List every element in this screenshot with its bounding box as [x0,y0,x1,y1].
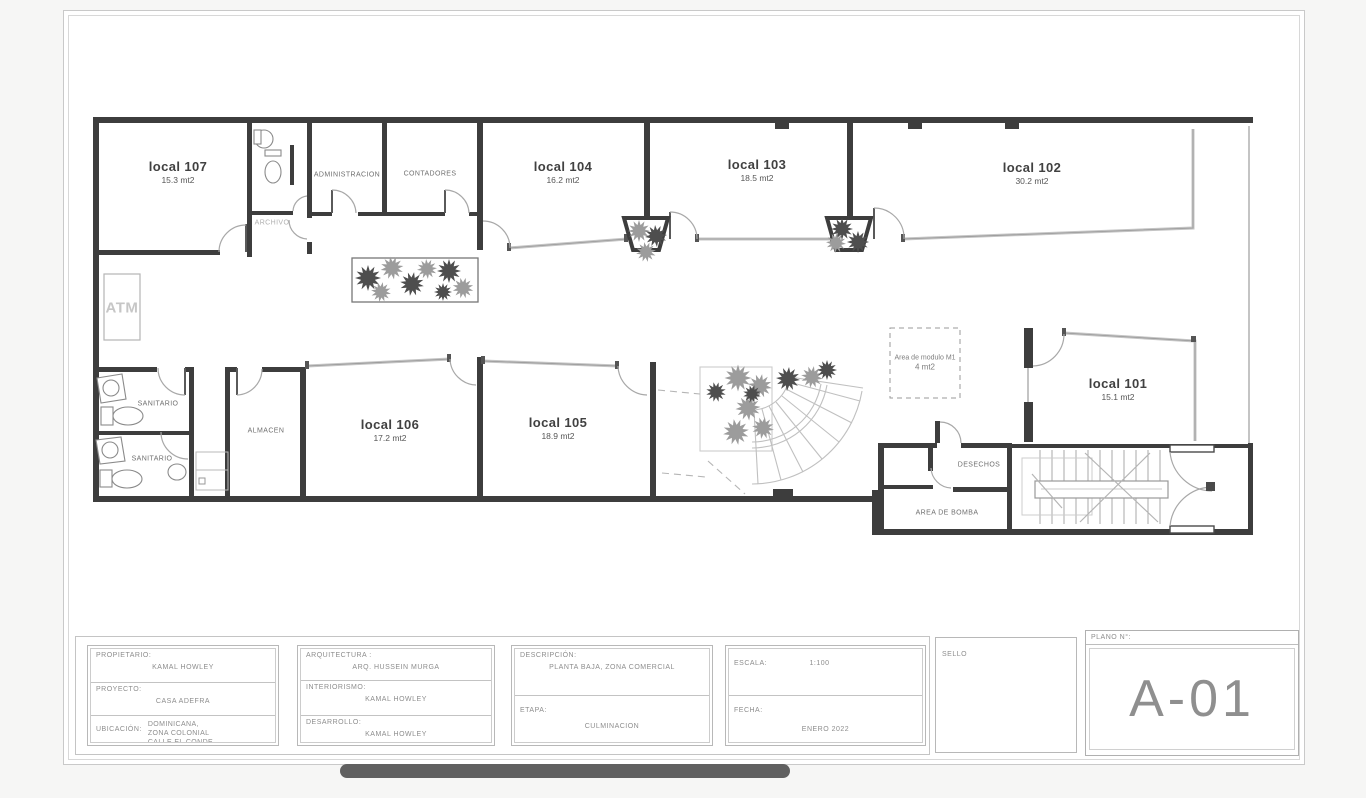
label-archivo: ARCHIVO [255,220,290,227]
titleblock-design-team: ARQUITECTURA : ARQ. HUSSEIN MURGA INTERI… [297,645,495,746]
titleblock-description: DESCRIPCIÓN: PLANTA BAJA, ZONA COMERCIAL… [511,645,713,746]
room-label-local-106: local 106 17.2 mt2 [361,417,420,443]
arquitectura-value: ARQ. HUSSEIN MURGA [306,664,486,671]
proyecto-label: PROYECTO: [96,686,270,693]
plano-label: PLANO N°: [1086,631,1298,645]
room-name: local 106 [361,417,420,432]
room-label-local-103: local 103 18.5 mt2 [728,157,787,183]
room-name: local 101 [1089,376,1148,391]
propietario-label: PROPIETARIO: [96,652,270,659]
module-note-line1: Area de modulo M1 [894,355,955,362]
label-contadores: CONTADORES [404,171,457,178]
room-area: 18.5 mt2 [740,173,773,183]
drawing-viewer: local 107 15.3 mt2 local 104 16.2 mt2 lo… [0,0,1366,798]
desarrollo-value: KAMAL HOWLEY [306,731,486,738]
module-area-note: Area de modulo M1 4 mt2 [894,355,955,372]
room-area: 30.2 mt2 [1015,176,1048,186]
room-name: local 102 [1003,160,1062,175]
column-planter-1 [624,218,671,266]
descripcion-label: DESCRIPCIÓN: [520,652,704,659]
ubicacion-label: UBICACIÓN: [96,726,142,733]
room-label-local-105: local 105 18.9 mt2 [529,415,588,441]
room-area: 17.2 mt2 [373,433,406,443]
label-sanitario-1: SANITARIO [138,401,179,408]
titleblock-sello: SELLO [935,637,1077,753]
room-name: local 104 [534,159,593,174]
room-name: local 103 [728,157,787,172]
fecha-label: FECHA: [734,707,917,714]
room-label-local-101: local 101 15.1 mt2 [1089,376,1148,402]
room-name: local 105 [529,415,588,430]
etapa-value: CULMINACION [520,723,704,730]
descripcion-value: PLANTA BAJA, ZONA COMERCIAL [520,664,704,671]
room-area: 18.9 mt2 [541,431,574,441]
proyecto-value: CASA ADEFRA [96,698,270,705]
escala-label: ESCALA: [734,660,767,667]
sheet-number: A-01 [1089,648,1295,750]
propietario-value: KAMAL HOWLEY [96,664,270,671]
etapa-label: ETAPA: [520,707,704,714]
label-atm: ATM [106,300,139,317]
titleblock-scale-date: ESCALA: 1:100 FECHA: ENERO 2022 [725,645,926,746]
label-administracion: ADMINISTRACION [314,172,380,179]
room-label-local-102: local 102 30.2 mt2 [1003,160,1062,186]
ubicacion-value: REPÚBLICA DOMINICANA, ZONA COLONIAL CALL… [148,716,213,742]
desarrollo-label: DESARROLLO: [306,719,486,726]
room-label-local-104: local 104 16.2 mt2 [534,159,593,185]
fan-stair [700,367,863,484]
titleblock-plano: PLANO N°: A-01 [1085,630,1299,756]
module-note-line2: 4 mt2 [915,363,935,372]
main-stair [1022,445,1215,533]
label-desechos: DESECHOS [958,462,1001,469]
interiorismo-label: INTERIORISMO: [306,684,486,691]
closet-outline [196,452,228,490]
fecha-value: ENERO 2022 [734,726,917,733]
interiorismo-value: KAMAL HOWLEY [306,696,486,703]
room-area: 15.1 mt2 [1101,392,1134,402]
horizontal-scrollbar[interactable] [340,764,790,778]
label-area-de-bomba: AREA DE BOMBA [916,510,979,517]
sello-label: SELLO [942,651,967,658]
room-label-local-107: local 107 15.3 mt2 [149,159,208,185]
titleblock-group: PROPIETARIO: KAMAL HOWLEY PROYECTO: CASA… [75,636,930,755]
room-name: local 107 [149,159,208,174]
room-area: 15.3 mt2 [161,175,194,185]
escala-value: 1:100 [810,660,830,667]
arquitectura-label: ARQUITECTURA : [306,652,486,659]
titleblock-owner: PROPIETARIO: KAMAL HOWLEY PROYECTO: CASA… [87,645,279,746]
label-almacen: ALMACEN [248,428,285,435]
corridor-planter [352,253,478,306]
label-sanitario-2: SANITARIO [132,456,173,463]
room-area: 16.2 mt2 [546,175,579,185]
